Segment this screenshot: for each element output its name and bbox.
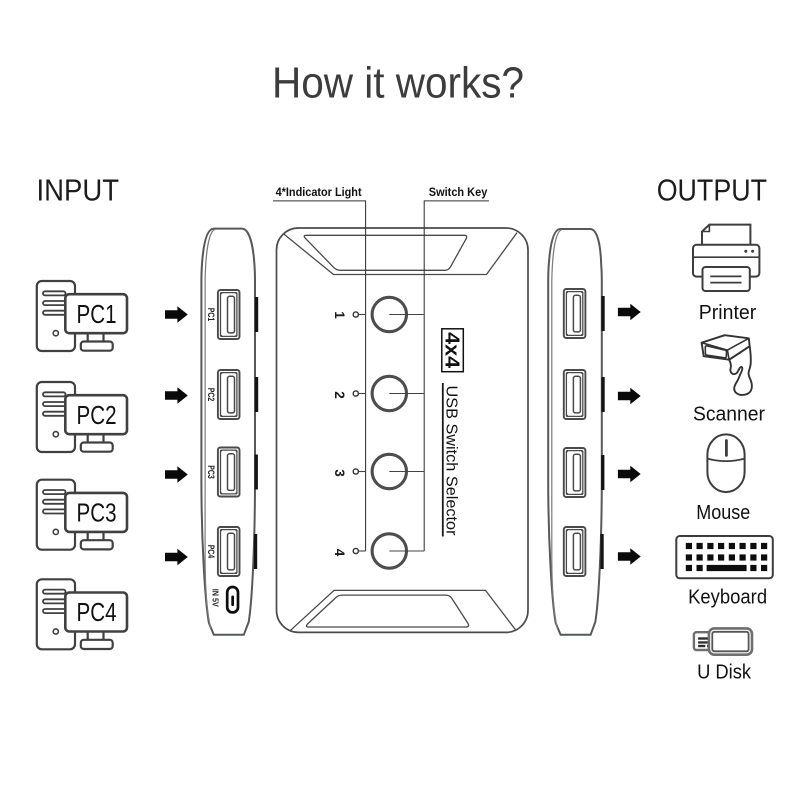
svg-text:3: 3 bbox=[332, 469, 347, 477]
svg-text:4: 4 bbox=[332, 549, 347, 557]
svg-text:Switch Key: Switch Key bbox=[429, 187, 488, 199]
svg-text:USB Switch Selector: USB Switch Selector bbox=[443, 386, 460, 536]
svg-text:PC4: PC4 bbox=[206, 545, 216, 559]
svg-text:1: 1 bbox=[332, 311, 347, 319]
svg-text:Printer: Printer bbox=[699, 302, 757, 324]
svg-text:PC1: PC1 bbox=[206, 308, 216, 322]
svg-text:4*Indicator Light: 4*Indicator Light bbox=[276, 187, 362, 199]
svg-text:4x4: 4x4 bbox=[441, 332, 463, 369]
svg-text:PC2: PC2 bbox=[77, 400, 117, 430]
svg-text:Scanner: Scanner bbox=[693, 404, 765, 426]
svg-text:PC3: PC3 bbox=[206, 465, 216, 479]
svg-text:Keyboard: Keyboard bbox=[688, 587, 767, 609]
svg-text:IN 5V: IN 5V bbox=[211, 589, 220, 608]
svg-text:PC1: PC1 bbox=[77, 299, 117, 329]
svg-text:PC3: PC3 bbox=[77, 498, 117, 528]
svg-text:2: 2 bbox=[332, 391, 347, 399]
svg-text:PC4: PC4 bbox=[77, 597, 117, 627]
svg-text:PC2: PC2 bbox=[206, 388, 216, 402]
svg-text:U Disk: U Disk bbox=[697, 661, 752, 683]
svg-text:How it works?: How it works? bbox=[272, 58, 524, 107]
svg-text:INPUT: INPUT bbox=[37, 173, 120, 208]
svg-text:OUTPUT: OUTPUT bbox=[657, 173, 767, 208]
svg-text:Mouse: Mouse bbox=[696, 502, 750, 524]
